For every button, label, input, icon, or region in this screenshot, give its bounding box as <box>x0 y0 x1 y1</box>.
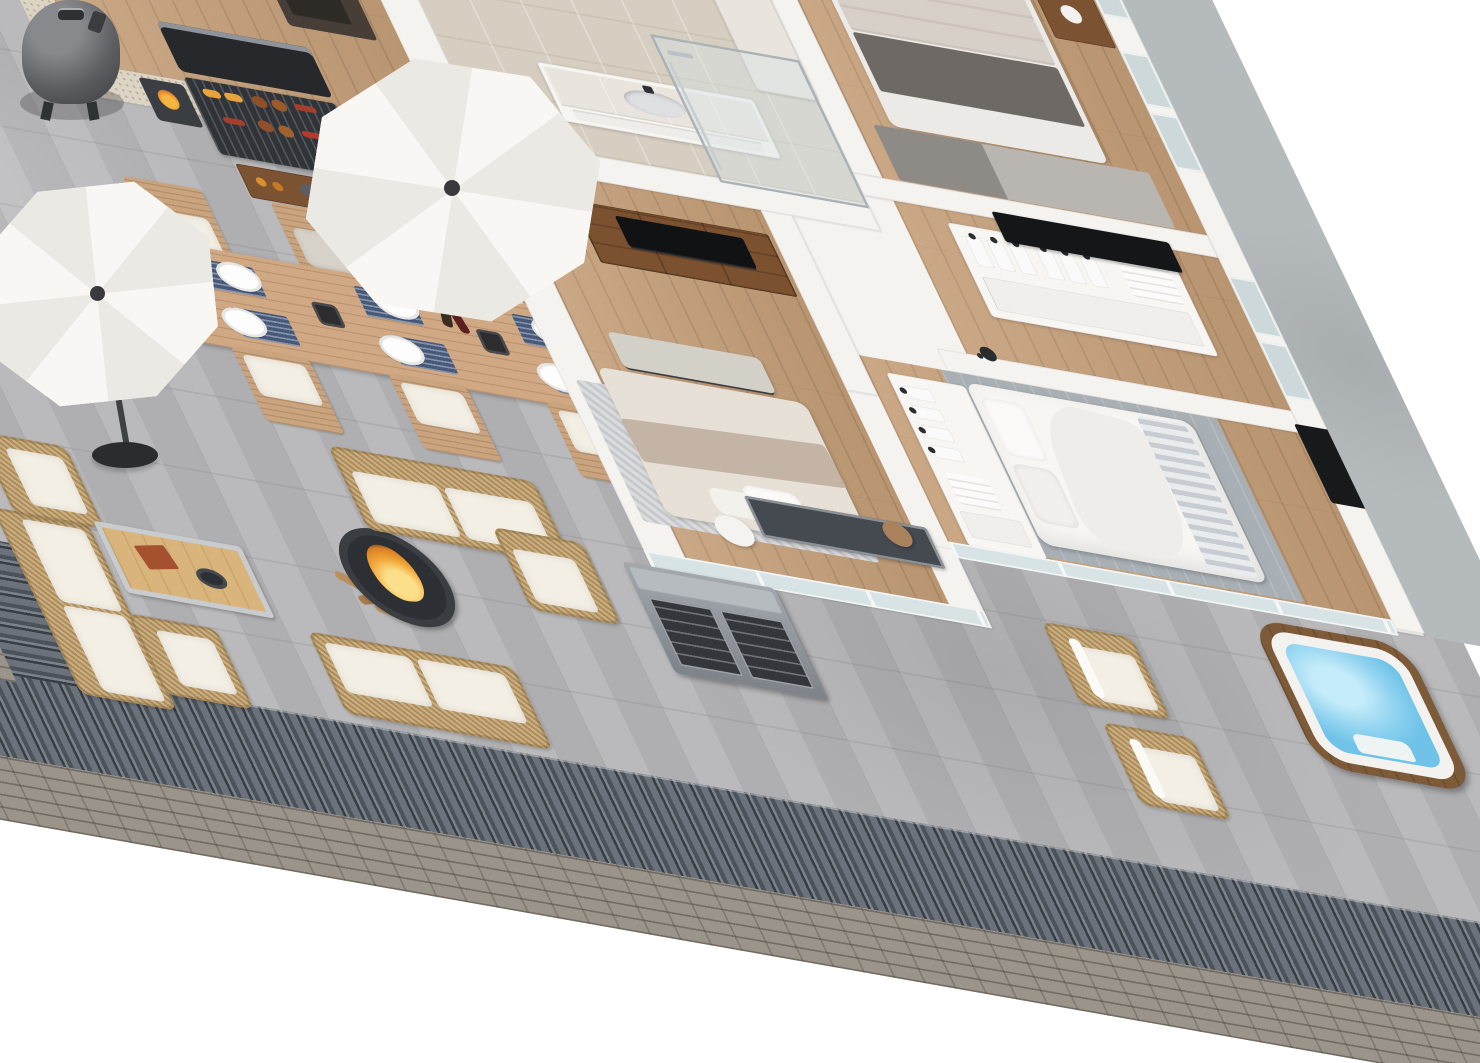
fruit <box>271 181 285 192</box>
umbrella-center-knob <box>444 180 460 196</box>
burger <box>276 124 296 138</box>
fruit <box>254 177 268 188</box>
wardrobe-shelf <box>959 510 1033 548</box>
charcoal-smoker <box>14 0 126 125</box>
hanging-shirt <box>929 444 965 463</box>
umbrella-base <box>92 442 158 468</box>
umbrella-center-knob <box>90 286 105 301</box>
burger <box>269 98 289 112</box>
candle-lantern <box>310 301 347 329</box>
nightstand-item <box>1057 4 1085 25</box>
throw-blanket <box>620 418 847 488</box>
sausage <box>222 116 247 126</box>
sofa-cushion <box>323 642 434 708</box>
hanging-shirt <box>901 385 937 404</box>
sausage <box>293 104 318 114</box>
sofa-cushion <box>416 658 529 724</box>
corn <box>201 88 223 99</box>
hanging-shirt <box>910 405 946 424</box>
corn <box>223 92 245 103</box>
charcoal-flame <box>154 88 183 111</box>
shower-head <box>666 50 694 59</box>
candle-lantern <box>475 328 512 356</box>
folded-towels <box>944 472 1003 512</box>
kitchen-furniture-top <box>280 0 352 25</box>
burger <box>256 119 276 133</box>
hanging-shirt <box>920 424 956 443</box>
burger <box>249 95 269 109</box>
floor-plan-scene <box>0 0 1480 1063</box>
smoker-lid-handle <box>58 8 84 20</box>
